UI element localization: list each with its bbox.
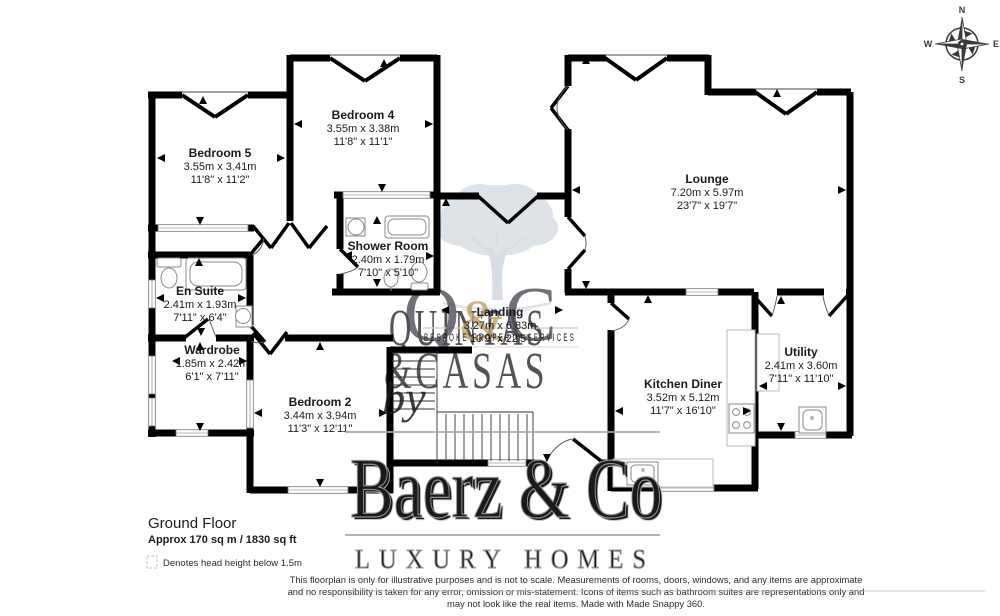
- room-imperial: 7'11" x 6'4": [173, 312, 226, 324]
- room-label-kitchen-diner: Kitchen Diner 3.52m x 5.12m 11'7" x 16'1…: [644, 377, 722, 417]
- compass-north-label: N: [959, 5, 966, 15]
- disclaimer-line-1: This floorplan is only for illustrative …: [290, 574, 863, 585]
- disclaimer-line-3: may not look like the real items. Made w…: [447, 598, 705, 609]
- hob-icon: [729, 404, 754, 433]
- floorplan-page: QUINTAS &CASAS Q&C BESPOKE PROPERTY SERV…: [0, 0, 1000, 616]
- head-height-legend-swatch: [147, 556, 157, 568]
- compass-east-label: E: [993, 39, 999, 49]
- room-name: Kitchen Diner: [644, 377, 722, 391]
- compass-south-label: S: [959, 75, 965, 85]
- compass-west-label: W: [924, 39, 933, 49]
- room-metric: 3.55m x 3.41m: [184, 161, 257, 173]
- room-metric: 3.55m x 3.38m: [327, 123, 400, 135]
- room-imperial: 11'8" x 11'1": [334, 136, 393, 148]
- french-window-leaves: [182, 58, 817, 117]
- room-metric: 1.85m x 2.42m: [176, 358, 249, 370]
- watermark-agency-name: Baerz & Co: [350, 440, 662, 536]
- room-metric: 3.27m x 6.83m: [464, 320, 537, 332]
- washer-icon: [799, 407, 826, 433]
- french-window-lines: [182, 55, 817, 92]
- room-metric: 2.41m x 3.60m: [765, 360, 838, 372]
- room-metric: 3.44m x 3.94m: [284, 410, 357, 422]
- room-label-bedroom-2: Bedroom 2 3.44m x 3.94m 11'3" x 12'11": [284, 395, 357, 435]
- room-metric: 7.20m x 5.97m: [671, 187, 744, 199]
- room-name: Bedroom 4: [332, 108, 395, 122]
- room-metric: 3.52m x 5.12m: [647, 392, 720, 404]
- room-label-lounge: Lounge 7.20m x 5.97m 23'7" x 19'7": [671, 172, 744, 212]
- room-label-bedroom-5: Bedroom 5 3.55m x 3.41m 11'8" x 11'2": [184, 146, 257, 186]
- compass-rose-icon: N E S W: [924, 5, 999, 85]
- sink-icon: [236, 306, 253, 327]
- floor-area: Approx 170 sq m / 1830 sq ft: [148, 534, 297, 546]
- room-imperial: 7'11" x 11'10": [769, 373, 834, 385]
- room-name: En Suite: [176, 284, 224, 298]
- room-name: Lounge: [685, 172, 729, 186]
- shower-bath-icon: [385, 216, 429, 238]
- room-label-shower-room: Shower Room 2.40m x 1.79m 7'10" x 5'10": [348, 239, 429, 279]
- floor-title: Ground Floor: [148, 515, 236, 532]
- room-name: Wardrobe: [184, 343, 240, 357]
- room-metric: 2.40m x 1.79m: [352, 254, 425, 266]
- room-imperial: 10'9" x 22'5": [470, 333, 530, 345]
- head-height-legend-text: Denotes head height below 1.5m: [163, 558, 302, 569]
- room-imperial: 11'3" x 12'11": [288, 423, 353, 435]
- room-label-wardrobe: Wardrobe 1.85m x 2.42m 6'1" x 7'11": [176, 343, 249, 383]
- room-metric: 2.41m x 1.93m: [164, 299, 237, 311]
- room-imperial: 23'7" x 19'7": [677, 200, 737, 212]
- room-name: Landing: [477, 305, 524, 319]
- room-imperial: 6'1" x 7'11": [185, 371, 238, 383]
- watermark-agency-tagline: LUXURY HOMES: [355, 544, 655, 574]
- shower-sink-icon: [346, 218, 365, 236]
- room-name: Utility: [784, 345, 818, 359]
- room-imperial: 11'8" x 11'2": [191, 174, 250, 186]
- room-name: Bedroom 5: [189, 146, 252, 160]
- room-label-bedroom-4: Bedroom 4 3.55m x 3.38m 11'8" x 11'1": [327, 108, 400, 148]
- room-imperial: 7'10" x 5'10": [358, 267, 418, 279]
- room-name: Shower Room: [348, 239, 429, 253]
- room-imperial: 11'7" x 16'10": [650, 405, 716, 417]
- watermark-by: by: [382, 372, 426, 423]
- room-name: Bedroom 2: [289, 395, 352, 409]
